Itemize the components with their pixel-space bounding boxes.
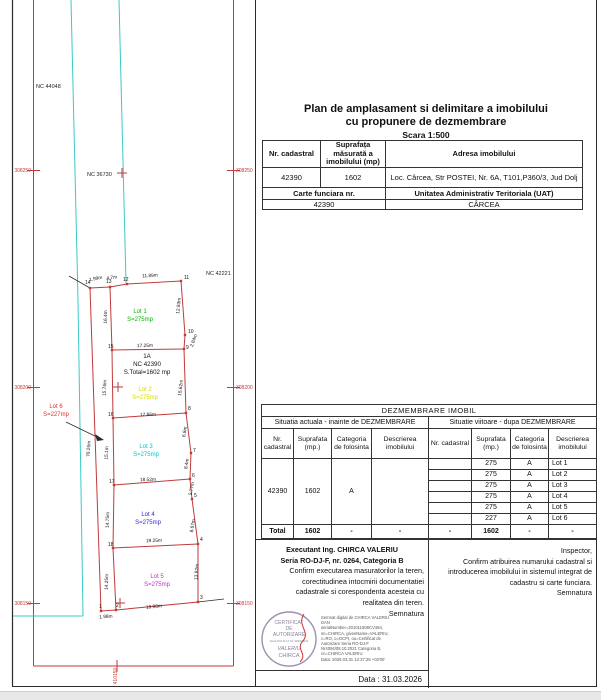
vertex-marker — [197, 543, 199, 545]
parcel-id-label: S.Total=1602 mp — [124, 369, 171, 376]
future-nr-cadastral — [429, 459, 472, 470]
vertex-marker — [115, 609, 117, 611]
executant-series: Seria RO-DJ-F, nr. 0264, Categoria B — [256, 556, 428, 567]
vertex-marker — [189, 478, 191, 480]
future-nr-cadastral — [429, 503, 472, 514]
executant-block: Executant Ing. CHIRCA VALERIU Seria RO-D… — [256, 540, 429, 688]
future-categoria: A — [511, 459, 549, 470]
vertex-number-label: 11 — [184, 275, 189, 281]
property-adresa: Loc. Cârcea, Str POSTEI, Nr. 6A, T101,P3… — [386, 167, 583, 187]
future-nr-cadastral — [429, 470, 472, 481]
col-descriere-actual: Descrierea imobilului — [372, 429, 429, 459]
measurement-label: 18.52m — [140, 477, 156, 484]
property-nr-cadastral: 42390 — [263, 167, 321, 187]
date-line: Data : 31.03.2026 — [256, 670, 428, 686]
cadastral-map: NC 44048NC 36730NC 422213082503082503082… — [0, 0, 256, 690]
grid-ticks — [27, 168, 240, 672]
map-scale: Scara 1:500 — [256, 130, 596, 140]
lot6-leader-line — [66, 422, 99, 438]
future-suprafata: 275 — [472, 481, 511, 492]
executant-statement-4: realitatea din teren. — [256, 598, 428, 609]
lot-name-label: Lot 1 — [133, 309, 147, 315]
property-col2-header: Suprafața măsurată a imobilului (mp) — [321, 141, 386, 168]
current-suprafata: 1602 — [294, 459, 332, 525]
future-descriere: Lot 1 — [549, 459, 597, 470]
nc-parcel-label: NC 42221 — [206, 271, 231, 277]
vertex-marker — [183, 348, 185, 350]
measurement-label: 1.98m — [99, 614, 113, 621]
executant-statement-3: cadastrale si corespondenta acesteia cu — [256, 587, 428, 598]
vertex-number-label: 5 — [194, 493, 197, 499]
measurement-label: 17.86m — [140, 412, 156, 419]
page-title-line1: Plan de amplasament si delimitare a imob… — [256, 103, 596, 116]
vertex-number-label: 13 — [106, 279, 112, 285]
signature-section: Executant Ing. CHIRCA VALERIU Seria RO-D… — [256, 539, 596, 688]
situatia-actuala-header: Situatia actuala - inainte de DEZMEMBRAR… — [262, 417, 429, 429]
property-col1-header: Nr. cadastral — [263, 141, 321, 168]
vertex-number-label: 14 — [85, 280, 91, 286]
measurement-label: 11.89m — [142, 273, 158, 280]
col-nr-cadastral-actual: Nr. cadastral — [262, 429, 294, 459]
measurement-label: 13.82m — [193, 564, 200, 580]
total-descriere-viitor: - — [549, 525, 597, 539]
page-bottom-border — [12, 686, 597, 687]
grid-coordinate-label: 308200 — [236, 385, 253, 391]
vertex-marker — [126, 283, 128, 285]
measurement-label: 19.25m — [146, 538, 162, 545]
property-suprafata: 1602 — [321, 167, 386, 187]
future-nr-cadastral — [429, 492, 472, 503]
vertex-marker — [197, 601, 199, 603]
vertex-number-label: 15 — [108, 344, 114, 350]
vertex-marker — [180, 280, 182, 282]
executant-name: Executant Ing. CHIRCA VALERIU — [256, 540, 428, 556]
future-suprafata: 275 — [472, 492, 511, 503]
col-descriere-viitor: Descrierea imobilului — [549, 429, 597, 459]
inspector-statement-2: introducerea imobilului in sistemul inte… — [429, 567, 596, 578]
lot-name-label: Lot 6 — [49, 404, 63, 410]
vertex-number-label: 17 — [109, 479, 115, 485]
map-labels: NC 44048NC 36730NC 422213082503082503082… — [14, 84, 253, 684]
inspector-title: Inspector, — [429, 540, 596, 557]
vertex-number-label: 18 — [108, 542, 114, 548]
future-descriere: Lot 5 — [549, 503, 597, 514]
measurement-label: 15.62m — [177, 380, 185, 397]
inspector-block: Inspector, Confirm atribuirea numarului … — [429, 540, 596, 688]
vertex-number-label: 8 — [188, 406, 191, 412]
dezmembrare-table: DEZMEMBRARE IMOBIL Situatia actuala - in… — [261, 404, 597, 539]
vertex-marker — [109, 286, 111, 288]
total-suprafata-actual: 1602 — [294, 525, 332, 539]
carte-funciara-nr: 42390 — [263, 199, 386, 209]
lot-name-label: Lot 4 — [141, 512, 155, 518]
utility-line-west — [71, 0, 83, 616]
inspector-statement-1: Confirm atribuirea numarului cadastral s… — [429, 557, 596, 568]
total-descriere-actual: - — [372, 525, 429, 539]
measurement-label: 17.25m — [137, 343, 153, 349]
future-descriere: Lot 3 — [549, 481, 597, 492]
stamp-text-chirca: CHIRCA — [278, 653, 299, 659]
future-categoria: A — [511, 514, 549, 525]
future-nr-cadastral — [429, 481, 472, 492]
vertex-marker — [184, 334, 186, 336]
grid-coordinate-label: 308150 — [14, 601, 31, 607]
grid-coordinate-label: 308200 — [14, 385, 31, 391]
vertex-number-label: 10 — [188, 329, 194, 335]
measurement-label: 14.75m — [105, 512, 112, 528]
inspector-semnatura-label: Semnatura — [429, 588, 596, 599]
col-suprafata-actual: Suprafata (mp.) — [294, 429, 332, 459]
measurement-label: 8.4m — [183, 458, 191, 470]
measurement-label: 15.76m — [102, 380, 109, 396]
property-table: Nr. cadastral Suprafața măsurată a imobi… — [262, 140, 583, 210]
measurement-label: 2.84m — [189, 333, 199, 348]
page-title-line2: cu propunere de dezmembrare — [256, 116, 596, 129]
vertex-marker — [185, 412, 187, 414]
current-nr-cadastral: 42390 — [262, 459, 294, 525]
lot-name-label: Lot 2 — [138, 387, 152, 393]
situatie-viitoare-header: Situatie viitoare - dupa DEZMEMBRARE — [429, 417, 597, 429]
future-suprafata: 275 — [472, 503, 511, 514]
document-panel: Plan de amplasament si delimitare a imob… — [255, 0, 597, 687]
total-label: Total — [262, 525, 294, 539]
measurement-label: 12.93m — [175, 298, 183, 315]
future-categoria: A — [511, 481, 549, 492]
vertex-number-label: 2 — [116, 603, 119, 609]
vertex-number-label: 7 — [193, 448, 196, 454]
uat-value: CÂRCEA — [386, 199, 583, 209]
vertex-marker — [190, 452, 192, 454]
table-row: 423901602A275ALot 1 — [262, 459, 597, 470]
col-categoria-viitor: Categoria de folosinta — [511, 429, 549, 459]
vertex-number-label: 9 — [186, 345, 189, 351]
future-descriere: Lot 6 — [549, 514, 597, 525]
grid-coordinate-label: 308250 — [236, 168, 253, 174]
col-nr-cadastral-viitor: Nr. cadastral — [429, 429, 472, 459]
lot-area-label: S=275mp — [144, 582, 171, 588]
lot-area-label: S=275mp — [133, 452, 160, 458]
vertex-marker — [191, 498, 193, 500]
lot-name-label: Lot 5 — [150, 574, 164, 580]
grid-coordinate-label: 410150 — [113, 667, 119, 684]
col-suprafata-viitor: Suprafata (mp.) — [472, 429, 511, 459]
future-categoria: A — [511, 492, 549, 503]
measurement-label: 16.4m — [103, 310, 109, 323]
vertex-number-label: 6 — [192, 473, 195, 479]
vertex-number-label: 12 — [123, 277, 129, 283]
total-categoria-viitor: - — [511, 525, 549, 539]
digital-signature-text: Semnat digital de CHIRCA VALERIUDANseria… — [321, 615, 421, 662]
parcel-id-label: 1A — [143, 353, 151, 360]
lots-left-edge — [110, 287, 116, 610]
grid-coordinate-label: 308150 — [236, 601, 253, 607]
vertex-number-label: 16 — [108, 412, 114, 418]
lot-area-label: S=275mp — [135, 520, 162, 526]
inspector-statement-3: cadastru si carte funciara. — [429, 578, 596, 589]
future-descriere: Lot 4 — [549, 492, 597, 503]
vertex-marker — [89, 287, 91, 289]
lot-name-label: Lot 3 — [139, 444, 153, 450]
measurement-label: 1.99m — [89, 275, 103, 284]
measurement-label: 15.1m — [104, 446, 111, 460]
dezmembrare-title: DEZMEMBRARE IMOBIL — [262, 405, 597, 417]
lot-area-label: S=227mp — [43, 412, 70, 418]
grid-coordinate-label: 308250 — [14, 168, 31, 174]
executant-statement-1: Confirm executarea masuratorilor la tere… — [256, 566, 428, 577]
authorization-stamp: CERTIFICAT DE AUTORIZARE Seria RO-DJ-F N… — [260, 610, 320, 670]
vertex-number-label: 4 — [200, 537, 203, 543]
current-descriere — [372, 459, 429, 525]
col-categoria-actual: Categoria de folosinta — [332, 429, 372, 459]
future-categoria: A — [511, 503, 549, 514]
uat-label: Unitatea Administrativ Teritoriala (UAT) — [386, 187, 583, 199]
property-col3-header: Adresa imobilului — [386, 141, 583, 168]
nc-parcel-label: NC 36730 — [87, 172, 112, 178]
parcel-id-label: NC 42390 — [133, 361, 161, 368]
measurement-label: 6.8m — [181, 426, 189, 438]
lot-area-label: S=275mp — [132, 395, 159, 401]
carte-funciara-label: Carte funciara nr. — [263, 187, 386, 199]
lot-area-label: S=275mp — [127, 317, 154, 323]
future-suprafata: 275 — [472, 459, 511, 470]
total-categoria-actual: - — [332, 525, 372, 539]
digital-signature-line: Data: 2026.03.31 12:37:29 +03'00' — [321, 657, 421, 662]
stamp-text-autorizare: AUTORIZARE — [273, 632, 306, 638]
vertex-marker — [100, 610, 102, 612]
executant-statement-2: corectitudinea intocmirii documentatiei — [256, 577, 428, 588]
current-categoria: A — [332, 459, 372, 525]
measurement-label: 70.26m — [85, 441, 92, 457]
measurement-label: 19.98m — [146, 603, 162, 610]
total-suprafata-viitor: 1602 — [472, 525, 511, 539]
lot4-lot5-divider — [113, 544, 198, 548]
future-categoria: A — [511, 470, 549, 481]
utility-line-east — [119, 0, 126, 283]
measurement-label: 14.25m — [104, 574, 111, 590]
vertex-number-label: 1 — [99, 604, 102, 610]
future-nr-cadastral — [429, 514, 472, 525]
title-block: Plan de amplasament si delimitare a imob… — [256, 103, 596, 140]
future-suprafata: 227 — [472, 514, 511, 525]
lot6-leader-arrowhead — [95, 434, 104, 441]
nc-parcel-label: NC 44048 — [36, 84, 61, 90]
vertex-number-label: 3 — [200, 595, 203, 601]
future-suprafata: 275 — [472, 470, 511, 481]
lot1-lot2-divider — [112, 349, 184, 350]
total-nr-viitor: - — [429, 525, 472, 539]
stamp-text-valeriu: VALERIU — [277, 646, 300, 652]
future-descriere: Lot 2 — [549, 470, 597, 481]
